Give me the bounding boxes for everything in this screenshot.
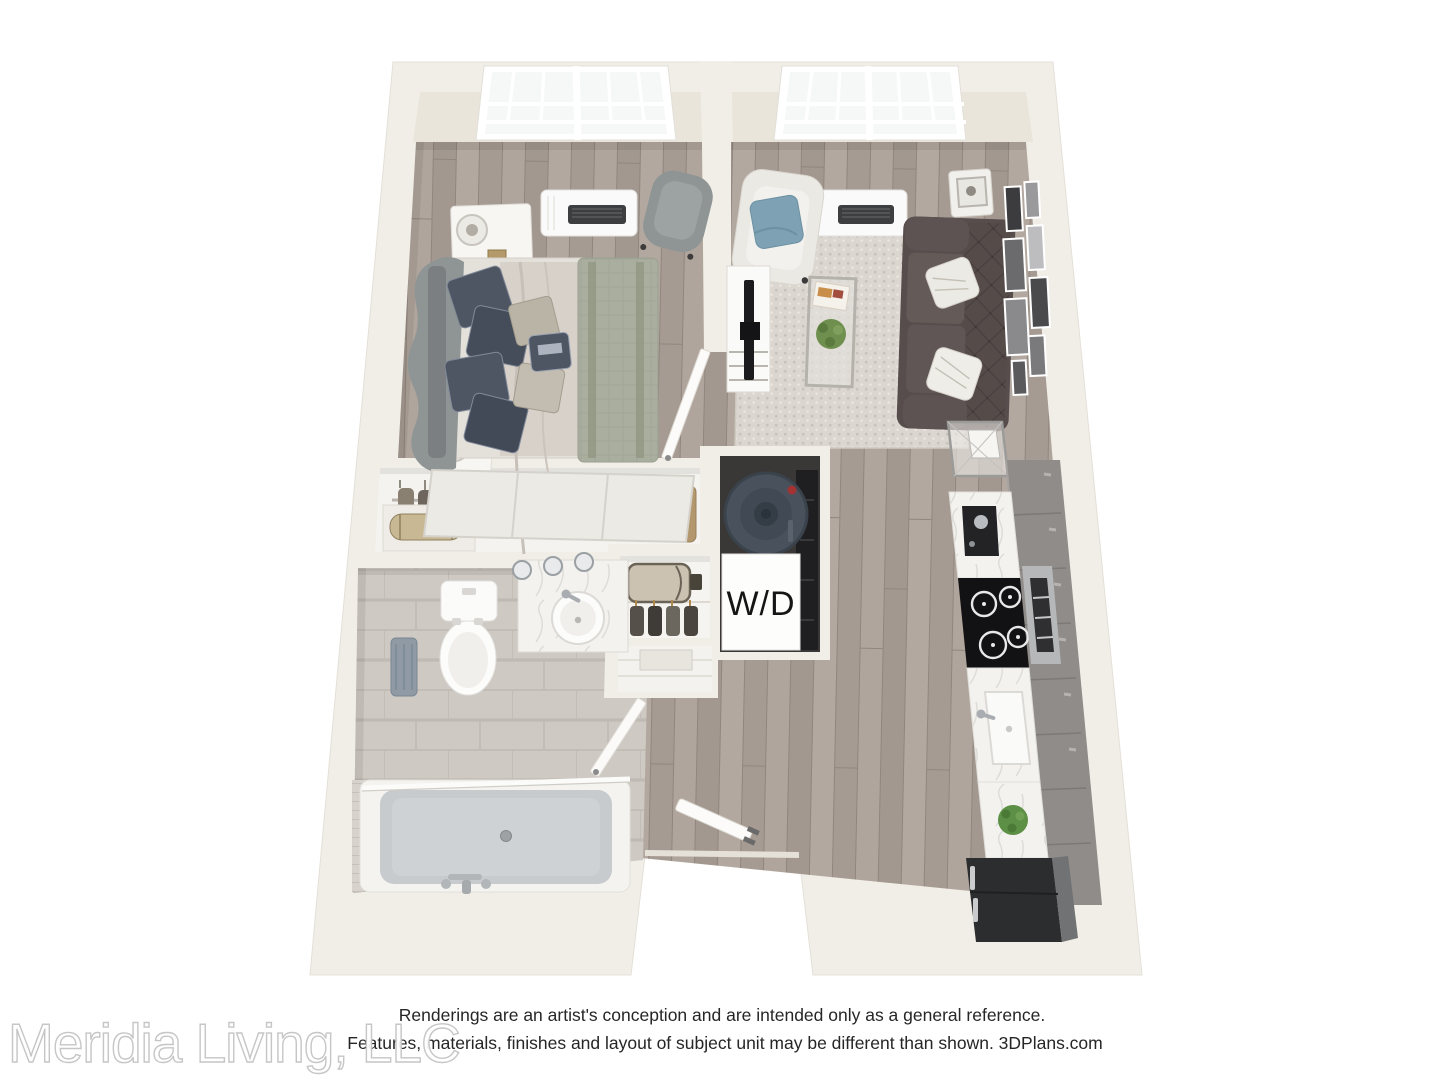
- cooktop: [958, 578, 1029, 668]
- footer: Renderings are an artist's conception an…: [8, 1005, 1103, 1074]
- bed-headboard: [428, 266, 446, 458]
- cube-side-table: [948, 422, 1008, 476]
- hall-closet-upper: [620, 556, 710, 638]
- bathtub: [352, 779, 630, 894]
- accent-pillow: [749, 194, 805, 250]
- bedroom-window: [476, 66, 676, 140]
- disclaimer-line1: Renderings are an artist's conception an…: [399, 1005, 1045, 1025]
- bed-blanket: [578, 258, 658, 462]
- tv-console: [727, 266, 770, 392]
- floorplan-rendering: W/D: [0, 0, 1440, 1080]
- closet-sliding-door: [424, 470, 694, 542]
- towel: [391, 638, 417, 696]
- water-heater: [725, 473, 807, 555]
- water-heater-valve: [788, 486, 797, 495]
- vanity: [513, 553, 628, 652]
- toilet: [440, 581, 497, 695]
- living-ptac-unit: [813, 190, 907, 236]
- tub-drain: [501, 831, 512, 842]
- kitchen-counter-plant: [978, 782, 1048, 858]
- kitchen-counter-coffee: [949, 492, 1020, 578]
- sofa-side-table: [948, 169, 993, 218]
- watermark: Meridia Living, LLC: [8, 1012, 460, 1074]
- coffee-maker: [962, 506, 999, 556]
- laundry-closet: W/D: [700, 446, 830, 660]
- sofa: [896, 216, 1015, 432]
- wd-label: W/D: [726, 585, 795, 623]
- linen-closet: [618, 646, 712, 692]
- bedroom-living-divider-wall: [700, 62, 733, 142]
- bedroom-closet: [383, 470, 696, 551]
- kitchen-sink: [967, 668, 1040, 782]
- living-room-window: [774, 66, 966, 140]
- refrigerator: [966, 856, 1078, 942]
- bedroom-ptac-unit: [541, 190, 637, 236]
- washer-dryer-unit: W/D: [722, 554, 800, 650]
- coffee-table: [806, 277, 856, 387]
- coffee-table-plant: [816, 319, 846, 349]
- disclaimer-line2: Features, materials, finishes and layout…: [347, 1033, 1103, 1053]
- floorplan-page: W/D: [0, 0, 1440, 1080]
